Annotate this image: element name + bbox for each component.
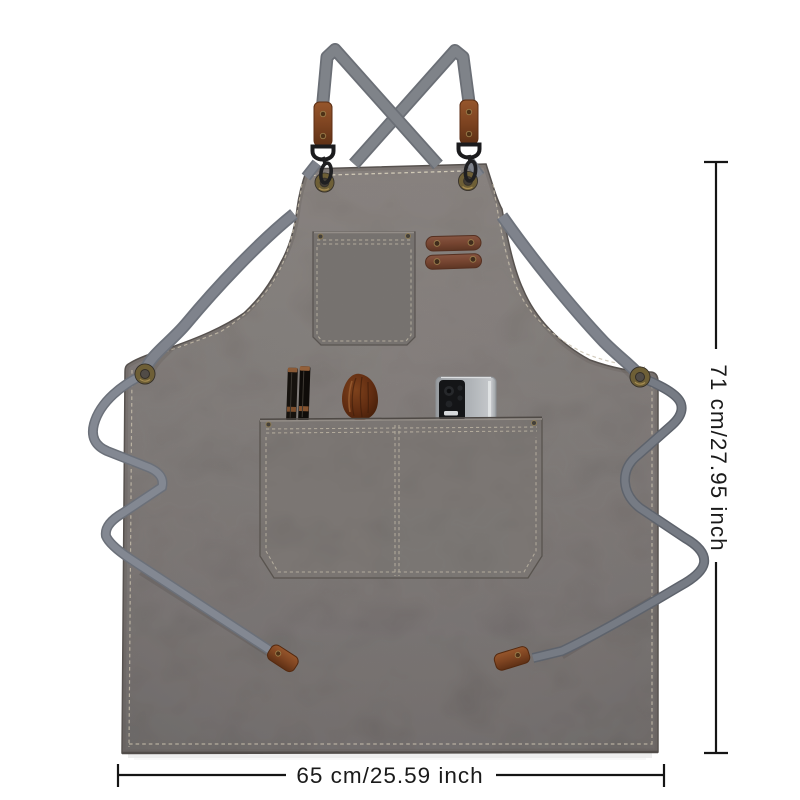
svg-text:65 cm/25.59 inch: 65 cm/25.59 inch (296, 763, 483, 788)
svg-text:71 cm/27.95 inch: 71 cm/27.95 inch (706, 364, 731, 551)
